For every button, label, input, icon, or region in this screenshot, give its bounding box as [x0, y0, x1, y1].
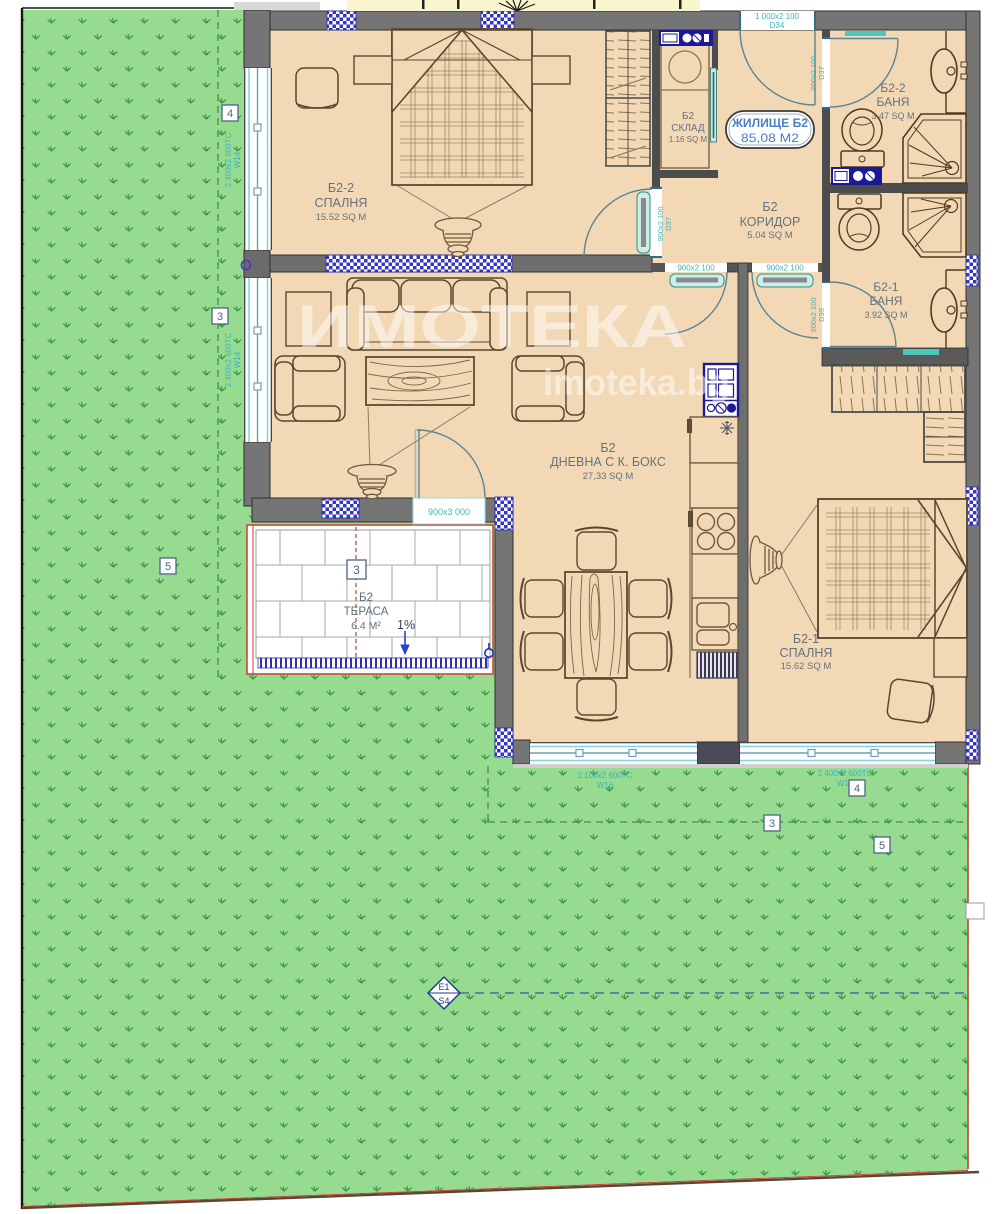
svg-text:6.4 М²: 6.4 М²: [351, 620, 381, 632]
svg-text:Б2: Б2: [762, 200, 777, 214]
svg-text:D39: D39: [817, 308, 826, 322]
svg-text:3: 3: [217, 311, 223, 323]
svg-text:3.47 SQ M: 3.47 SQ M: [871, 111, 914, 121]
svg-text:W14: W14: [233, 151, 242, 168]
svg-text:ДНЕВНА С К. БОКС: ДНЕВНА С К. БОКС: [550, 455, 666, 469]
svg-text:1 000x2 100: 1 000x2 100: [755, 12, 800, 21]
svg-text:БАНЯ: БАНЯ: [870, 294, 903, 308]
svg-text:4: 4: [854, 783, 860, 795]
svg-text:СПАЛНЯ: СПАЛНЯ: [780, 646, 833, 660]
svg-text:1.16 SQ M: 1.16 SQ M: [669, 135, 708, 144]
svg-text:ИМОТЕКА: ИМОТЕКА: [297, 293, 687, 360]
svg-text:КОРИДОР: КОРИДОР: [740, 215, 801, 229]
svg-text:БАНЯ: БАНЯ: [877, 95, 910, 109]
svg-text:Е1: Е1: [438, 982, 449, 992]
svg-text:ЖИЛИЩЕ Б2: ЖИЛИЩЕ Б2: [731, 116, 808, 130]
svg-text:3.92 SQ M: 3.92 SQ M: [864, 310, 907, 320]
svg-text:5: 5: [165, 561, 171, 573]
svg-text:Б2-2: Б2-2: [328, 181, 354, 195]
svg-text:W14: W14: [233, 351, 242, 368]
svg-text:D37: D37: [817, 66, 826, 80]
svg-text:4: 4: [227, 108, 233, 120]
svg-text:900x3 000: 900x3 000: [428, 507, 470, 517]
svg-text:5: 5: [879, 840, 885, 852]
svg-text:СПАЛНЯ: СПАЛНЯ: [315, 196, 368, 210]
svg-text:Б2-1: Б2-1: [793, 632, 819, 646]
svg-text:Б2: Б2: [600, 441, 615, 455]
svg-text:D34: D34: [770, 21, 785, 30]
svg-text:27,33 SQ M: 27,33 SQ M: [583, 471, 634, 482]
svg-text:2 400x2 600ТС: 2 400x2 600ТС: [224, 132, 233, 187]
svg-text:S4: S4: [438, 996, 449, 1006]
svg-text:900x2 100: 900x2 100: [677, 264, 715, 273]
svg-text:85,08 М2: 85,08 М2: [741, 131, 799, 145]
svg-text:D37: D37: [664, 217, 673, 231]
svg-text:5.04 SQ M: 5.04 SQ M: [747, 230, 792, 241]
svg-text:2 400x2 600ТС: 2 400x2 600ТС: [818, 769, 873, 778]
svg-text:2 400x2 600ТС: 2 400x2 600ТС: [224, 332, 233, 387]
svg-text:СКЛАД: СКЛАД: [671, 123, 705, 134]
svg-text:Б2-2: Б2-2: [880, 81, 906, 95]
svg-text:1%: 1%: [397, 618, 415, 632]
svg-text:ТЕРАСА: ТЕРАСА: [344, 606, 389, 618]
svg-text:Б2: Б2: [359, 592, 373, 604]
svg-text:3: 3: [353, 563, 360, 577]
svg-text:2 100x2 600ТС: 2 100x2 600ТС: [578, 771, 633, 780]
svg-text:15.52 SQ M: 15.52 SQ M: [316, 212, 367, 223]
svg-text:Б2-1: Б2-1: [873, 280, 899, 294]
svg-text:15.62 SQ M: 15.62 SQ M: [781, 661, 832, 672]
svg-text:Б2: Б2: [682, 111, 695, 122]
svg-text:3: 3: [769, 818, 775, 830]
svg-text:imoteka.bg: imoteka.bg: [543, 362, 730, 403]
svg-text:900x2 100: 900x2 100: [766, 264, 804, 273]
svg-text:W16: W16: [597, 781, 614, 790]
